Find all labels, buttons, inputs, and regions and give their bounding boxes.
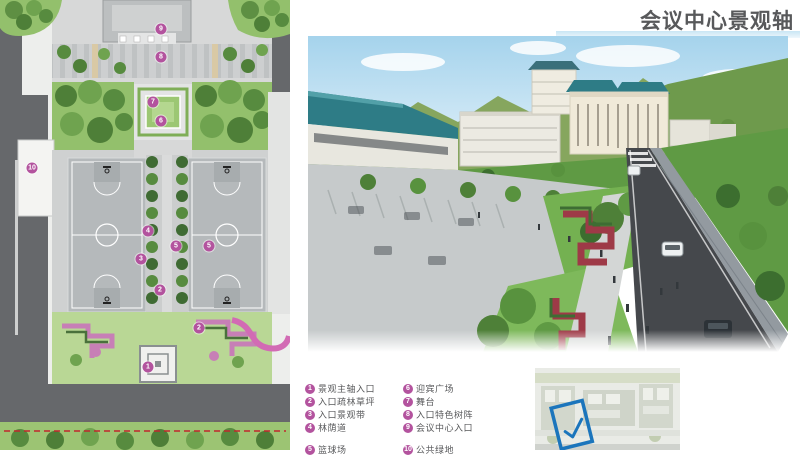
plan-marker: 9: [156, 24, 167, 35]
central-garden-stage: [134, 84, 192, 140]
bottom-fade: [308, 330, 788, 352]
legend-item: 3入口景观带: [305, 406, 366, 417]
plan-marker: 8: [156, 52, 167, 63]
legend-marker-icon: 4: [305, 423, 315, 433]
legend-item: 8入口特色树阵: [403, 406, 473, 417]
east-pavement: [268, 92, 290, 314]
legend-marker-icon: 9: [403, 423, 413, 433]
legend-label: 会议中心入口: [416, 421, 473, 434]
legend-item: 1景观主轴入口: [305, 380, 375, 391]
legend-item: 4林荫道: [305, 419, 347, 430]
legend-item: 2入口疏林草坪: [305, 393, 375, 404]
plan-marker: 7: [148, 97, 159, 108]
tree-block-right: [192, 80, 272, 154]
legend-item: 10公共绿地: [403, 441, 454, 452]
location-key-map: [535, 368, 680, 450]
plan-marker: 2: [155, 285, 166, 296]
plan-marker: 5: [204, 241, 215, 252]
plan-marker: 6: [156, 116, 167, 127]
plan-marker: 2: [194, 323, 205, 334]
thumb-tree-band: [535, 373, 680, 383]
plan-marker: 1: [143, 362, 154, 373]
basketball-court-right: [188, 158, 266, 312]
tree-lined-axis: [146, 155, 188, 315]
location-thumbnail: [535, 368, 680, 450]
legend-label: 林荫道: [318, 421, 347, 434]
white-van: [628, 166, 640, 175]
tree-block-left: [52, 80, 134, 154]
legend-item: 6迎宾广场: [403, 380, 454, 391]
legend-item: 7舞台: [403, 393, 435, 404]
legend-item: 9会议中心入口: [403, 419, 473, 430]
street-verge: [0, 422, 290, 450]
plan-marker: 10: [27, 163, 38, 174]
conference-building-footprint: [103, 0, 191, 47]
aerial-rendering: [308, 36, 788, 352]
plan-marker: 4: [143, 226, 154, 237]
plan-marker: 3: [136, 254, 147, 265]
flower-garden: [52, 312, 289, 384]
rendering-panel: [308, 36, 788, 352]
thumb-bottom-strip: [535, 444, 680, 450]
white-platform-area: [18, 140, 54, 216]
plan-marker: 5: [171, 241, 182, 252]
site-plan-panel: 9 8 7 6 10 4 5 5 3 2 2 1: [0, 0, 290, 450]
legend-item: 5篮球场: [305, 441, 347, 452]
basketball-court-left: [68, 158, 146, 312]
